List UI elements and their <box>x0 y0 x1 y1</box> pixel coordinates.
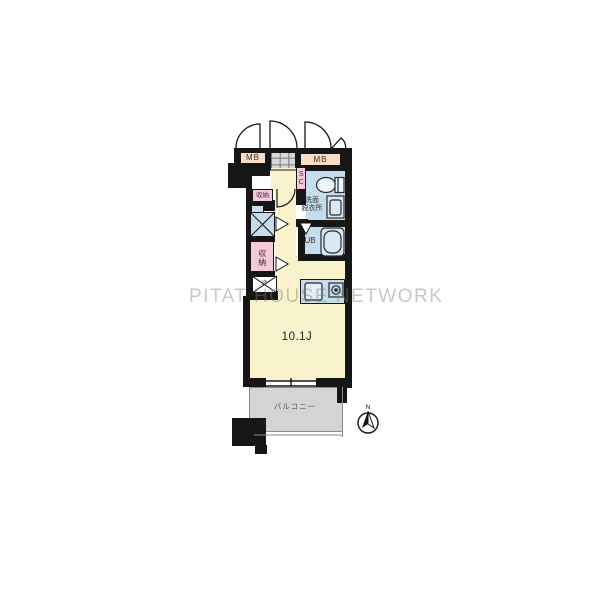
shoe-closet-label: SC <box>297 169 305 189</box>
washing-machine-cross <box>250 212 275 237</box>
unit-bath-label: UB <box>301 237 319 246</box>
closet-lower-label: 収納 <box>257 246 266 270</box>
entrance-door-arcs <box>236 121 346 149</box>
meter-box-left-label: MB <box>240 154 266 163</box>
room-size-label: 10.1J <box>267 331 327 344</box>
washroom-label-line2: 脱衣所 <box>299 205 325 213</box>
closet-upper-label: 収納 <box>252 192 273 199</box>
hall-door-arc <box>277 189 295 207</box>
balcony-label: バルコニー <box>262 403 328 411</box>
compass-north-label: N <box>362 404 374 411</box>
balcony-rail-lines <box>254 387 343 437</box>
bathtub-icon <box>321 228 344 256</box>
vanity-icon <box>327 196 344 218</box>
floorplan-canvas: MB MB SC 洗面 脱衣所 UB 収納 収納 冷 10.1J バルコニー N… <box>0 0 600 600</box>
balcony-window <box>266 378 316 386</box>
toilet-icon <box>317 178 345 193</box>
washroom-label-line1: 洗面 <box>299 197 325 205</box>
watermark-text: PITAT HOUSE NETWORK <box>189 286 443 308</box>
compass-icon <box>358 411 378 433</box>
meter-box-right-label: MB <box>300 156 341 165</box>
